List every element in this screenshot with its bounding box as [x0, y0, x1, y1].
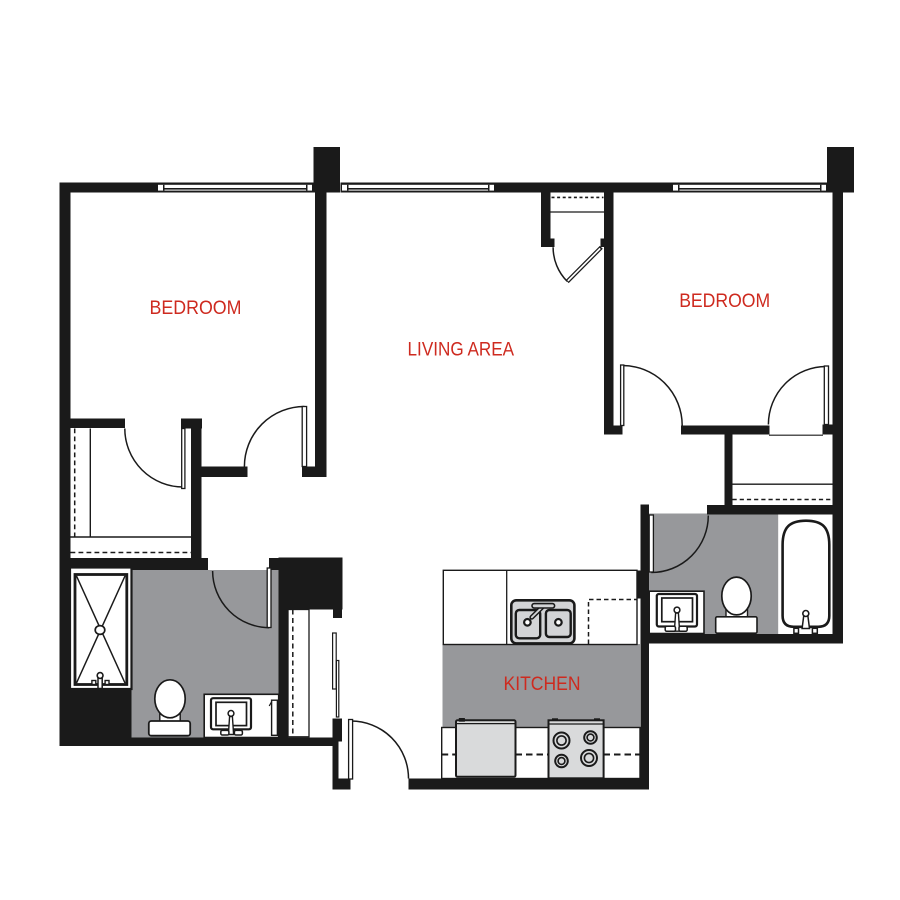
svg-text:KITCHEN: KITCHEN [504, 674, 581, 695]
svg-text:BEDROOM: BEDROOM [150, 298, 242, 319]
svg-text:LIVING AREA: LIVING AREA [408, 340, 515, 361]
svg-text:BEDROOM: BEDROOM [679, 291, 770, 312]
